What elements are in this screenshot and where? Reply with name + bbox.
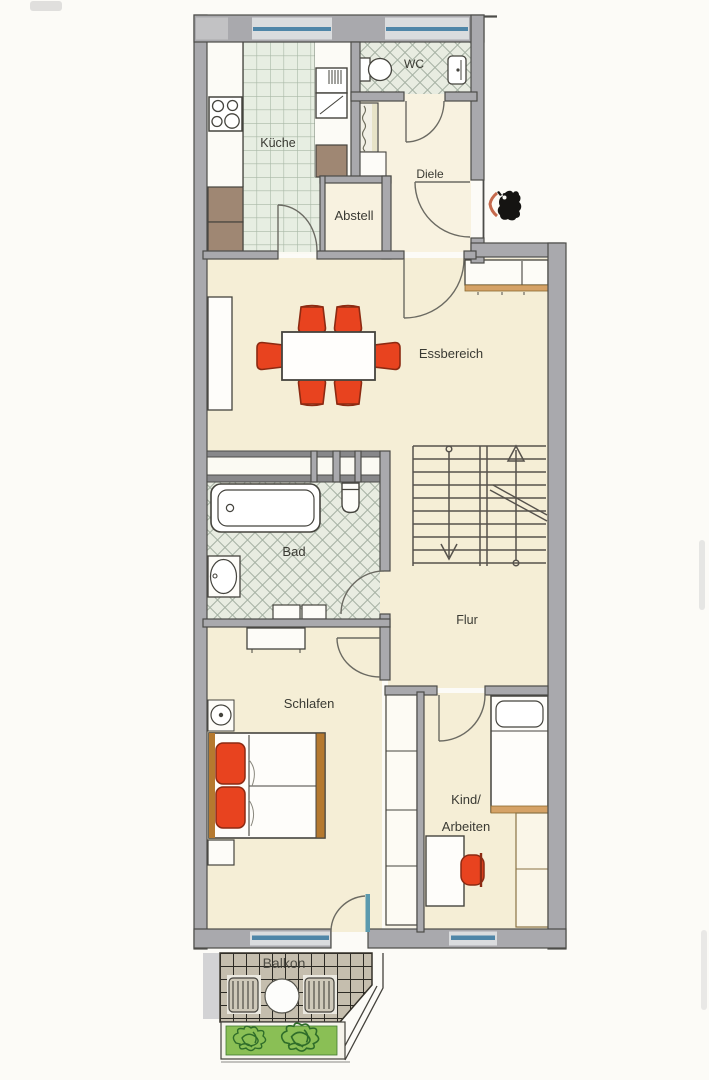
- svg-text:Flur: Flur: [456, 613, 478, 627]
- svg-text:Schlafen: Schlafen: [284, 696, 335, 711]
- svg-text:Essbereich: Essbereich: [419, 346, 483, 361]
- svg-text:Diele: Diele: [416, 167, 444, 181]
- svg-text:Arbeiten: Arbeiten: [442, 819, 490, 834]
- svg-text:Küche: Küche: [260, 136, 295, 150]
- svg-text:Bad: Bad: [282, 544, 305, 559]
- svg-text:Balkon: Balkon: [263, 955, 306, 971]
- svg-text:Kind/: Kind/: [451, 792, 481, 807]
- svg-text:Abstell: Abstell: [334, 208, 373, 223]
- svg-text:WC: WC: [404, 57, 424, 71]
